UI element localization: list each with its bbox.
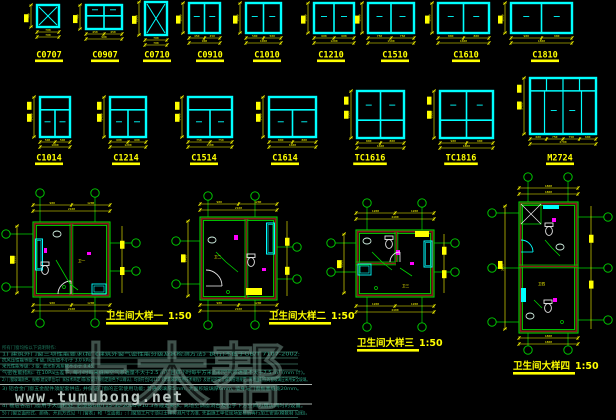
dim-text: 2700 <box>559 140 566 144</box>
dim-text: 2400 <box>391 215 398 219</box>
dim-text: 500 <box>252 34 258 38</box>
watermark-url: www.tumubong.net <box>15 388 184 406</box>
window-label: C1210 <box>318 51 344 61</box>
dim-text: 800 <box>366 139 372 143</box>
dim-text: 900 <box>477 139 483 143</box>
window-label: C1514 <box>191 154 217 164</box>
dim-text: 700 <box>45 33 51 37</box>
detail-title: 卫生间大样三1:50 <box>357 337 443 349</box>
dim-text: 750 <box>400 34 406 38</box>
window-label: C0907 <box>92 51 118 61</box>
window-label: C1810 <box>532 51 558 61</box>
dim-text: 450 <box>194 34 200 38</box>
dim-text: 2100 <box>68 307 75 311</box>
dim-text: 600 <box>341 34 347 38</box>
dim-text: 1000 <box>260 39 267 43</box>
dim-text: 1800 <box>545 334 552 338</box>
dim-text: 600 <box>585 135 591 139</box>
window-label: C0710 <box>144 51 170 61</box>
dim-text: 900 <box>217 200 223 204</box>
window-label: C1014 <box>36 154 62 164</box>
dim-text: 1800 <box>463 144 470 148</box>
dim-text: 1200 <box>411 209 418 213</box>
cad-canvas: 700700700C0707450450900700C0907700700100… <box>0 0 616 420</box>
detail-title: 卫生间大样一1:50 <box>106 310 192 322</box>
dim-text: 1200 <box>372 302 379 306</box>
dim-text: 1500 <box>206 143 213 147</box>
dim-text: 900 <box>554 34 560 38</box>
window-label: C0707 <box>36 51 62 61</box>
window-label: C1614 <box>272 154 298 164</box>
dim-text: 900 <box>50 201 56 205</box>
dim-text: 900 <box>202 39 208 43</box>
dim-text: 900 <box>451 139 457 143</box>
dim-text: 800 <box>448 34 454 38</box>
dim-text: 1200 <box>411 302 418 306</box>
dim-text: 1200 <box>254 200 261 204</box>
dim-text: 2100 <box>68 207 75 211</box>
dim-text: 卫三 <box>402 284 410 288</box>
window-label: M2724 <box>547 154 573 164</box>
detail-title: 卫生间大样二1:50 <box>269 310 355 322</box>
dim-text: 卫一 <box>78 259 86 263</box>
dim-text: 1800 <box>545 340 552 344</box>
dim-text: 800 <box>474 34 480 38</box>
detail-title: 卫生间大样四1:50 <box>513 360 599 372</box>
dim-text: 450 <box>210 34 216 38</box>
dim-text: 900 <box>217 301 223 305</box>
window-label: TC1616 <box>355 154 386 164</box>
window-label: TC1816 <box>446 154 477 164</box>
dim-text: 1200 <box>254 301 261 305</box>
window-label: C0910 <box>197 51 223 61</box>
dim-text: 750 <box>196 138 202 142</box>
dim-text: 1200 <box>330 39 337 43</box>
dim-text: 750 <box>552 135 558 139</box>
note-line: 所有门窗均按以下说明制作: <box>2 344 56 351</box>
dim-text: 2100 <box>235 206 242 210</box>
dim-text: 800 <box>390 139 396 143</box>
dim-text: 1200 <box>87 201 94 205</box>
dim-text: 1800 <box>538 39 545 43</box>
dim-text: 450 <box>110 30 116 34</box>
dim-text: 1600 <box>289 143 296 147</box>
dim-text: 1800 <box>545 184 552 188</box>
window-label: C1010 <box>254 51 280 61</box>
dim-text: 750 <box>218 138 224 142</box>
dim-text: 1600 <box>377 144 384 148</box>
dim-text: 600 <box>116 138 122 142</box>
dim-text: 1200 <box>372 209 379 213</box>
dim-text: 900 <box>101 35 107 39</box>
watermark-logo: 土木帮 <box>58 335 286 420</box>
window-label: C1510 <box>382 51 408 61</box>
dim-text: 800 <box>302 138 308 142</box>
dim-text: 1200 <box>124 143 131 147</box>
dim-text: 1000 <box>51 143 58 147</box>
dim-text: 900 <box>524 34 530 38</box>
dim-text: 900 <box>50 301 56 305</box>
window-label: C1610 <box>453 51 479 61</box>
dim-text: 1200 <box>87 301 94 305</box>
dim-text: 2100 <box>235 307 242 311</box>
dim-text: 700 <box>153 41 159 45</box>
dim-text: 2400 <box>391 308 398 312</box>
dim-text: 500 <box>60 138 66 142</box>
cad-drawing-stage: 700700700C0707450450900700C0907700700100… <box>0 0 616 420</box>
dim-text: 750 <box>569 135 575 139</box>
dim-text: 600 <box>536 135 542 139</box>
dim-text: 600 <box>134 138 140 142</box>
dim-text: 卫四 <box>538 282 546 286</box>
dim-text: 1600 <box>460 39 467 43</box>
dim-text: 500 <box>270 34 276 38</box>
dim-text: 450 <box>92 30 98 34</box>
dim-text: 1500 <box>387 39 394 43</box>
dim-text: 卫二 <box>214 255 222 259</box>
dim-text: 700 <box>45 28 51 32</box>
dim-text: 800 <box>278 138 284 142</box>
dim-text: 750 <box>377 34 383 38</box>
dim-text: 600 <box>321 34 327 38</box>
dim-text: 500 <box>45 138 51 142</box>
window-label: C1214 <box>113 154 139 164</box>
dim-text: 700 <box>153 36 159 40</box>
dim-text: 1800 <box>545 190 552 194</box>
